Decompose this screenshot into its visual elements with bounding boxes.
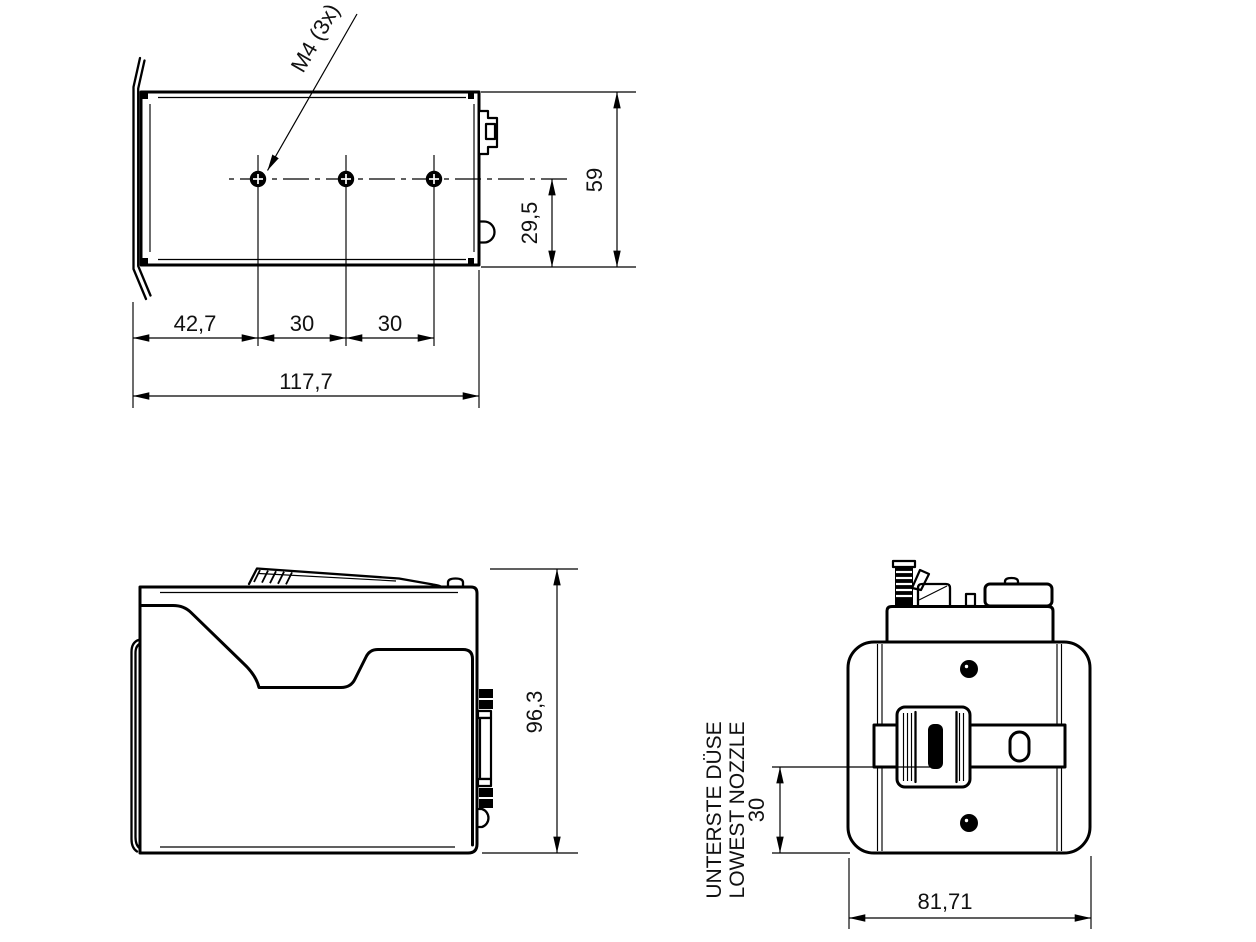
dim-29-5: 29,5 (517, 202, 542, 245)
dim-30-pitch2: 30 (378, 311, 402, 336)
small-notch (966, 594, 975, 606)
drawing-svg: M4 (3x) 29,5 59 42,7 30 30 117,7 (0, 0, 1256, 942)
annotation-unterste-duese: UNTERSTE DÜSE (703, 721, 726, 898)
front-view-top-components (893, 561, 1052, 606)
nozzle-block (897, 707, 970, 787)
top-view-dim-bottom: 42,7 30 30 117,7 (133, 270, 479, 408)
top-view: M4 (3x) 29,5 59 42,7 30 30 117,7 (133, 0, 636, 408)
front-view-platform (887, 607, 1053, 643)
technical-drawing: M4 (3x) 29,5 59 42,7 30 30 117,7 (0, 0, 1256, 942)
screw-bottom (960, 814, 978, 832)
annotation-lowest-nozzle: LOWEST NOZZLE (726, 722, 749, 899)
screw-top (960, 660, 978, 678)
nozzle-slot (928, 724, 943, 769)
thread-callout-label: M4 (3x) (286, 0, 345, 77)
side-view-top-clip (249, 569, 463, 588)
side-view-body-outline (140, 587, 477, 853)
side-view-connector (478, 689, 493, 827)
dim-81-71: 81,71 (917, 889, 972, 914)
dim-96-3: 96,3 (522, 691, 547, 734)
side-view: 96,3 (132, 569, 579, 854)
front-view: 30 UNTERSTE DÜSE LOWEST NOZZLE 81,71 (703, 561, 1091, 929)
connector-housing (985, 584, 1052, 606)
top-view-connector (480, 111, 497, 243)
front-view-dim-width: 81,71 (849, 856, 1091, 929)
dim-59: 59 (582, 168, 607, 192)
dim-30-pitch1: 30 (290, 311, 314, 336)
lever (912, 570, 929, 590)
oval-hole (1010, 732, 1029, 761)
dim-42-7: 42,7 (174, 311, 217, 336)
side-view-dim-height: 96,3 (482, 569, 578, 853)
dim-117-7: 117,7 (279, 369, 332, 394)
